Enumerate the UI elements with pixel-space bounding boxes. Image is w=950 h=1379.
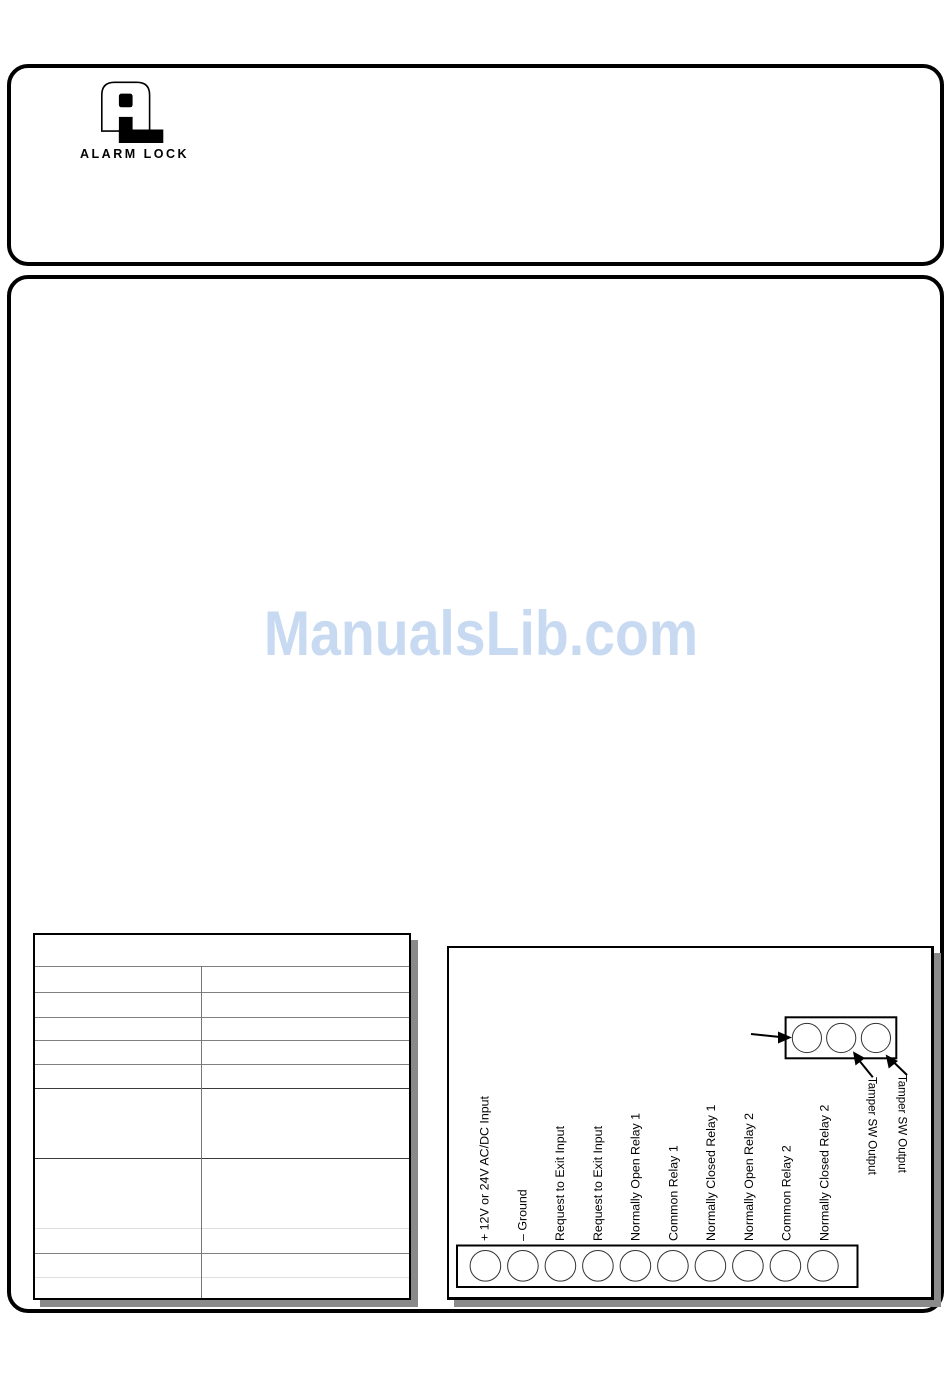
svg-text:Common Relay 2: Common Relay 2 bbox=[780, 1145, 794, 1241]
svg-text:Normally Closed Relay 1: Normally Closed Relay 1 bbox=[704, 1105, 718, 1241]
svg-text:Normally Closed Relay 2: Normally Closed Relay 2 bbox=[817, 1105, 831, 1241]
svg-text:+ 12V or 24V AC/DC Input: + 12V or 24V AC/DC Input bbox=[478, 1095, 492, 1241]
svg-text:Normally Open Relay 2: Normally Open Relay 2 bbox=[742, 1113, 756, 1241]
svg-text:Tamper SW Output: Tamper SW Output bbox=[895, 1075, 907, 1174]
svg-text:Tamper SW Output: Tamper SW Output bbox=[866, 1077, 878, 1176]
svg-text:Normally Open Relay 1: Normally Open Relay 1 bbox=[629, 1113, 643, 1241]
svg-text:Request to Exit Input: Request to Exit Input bbox=[591, 1125, 605, 1241]
svg-text:– Ground: – Ground bbox=[515, 1189, 529, 1241]
svg-text:Request to Exit Input: Request to Exit Input bbox=[553, 1125, 567, 1241]
svg-text:Common Relay 1: Common Relay 1 bbox=[666, 1145, 680, 1241]
